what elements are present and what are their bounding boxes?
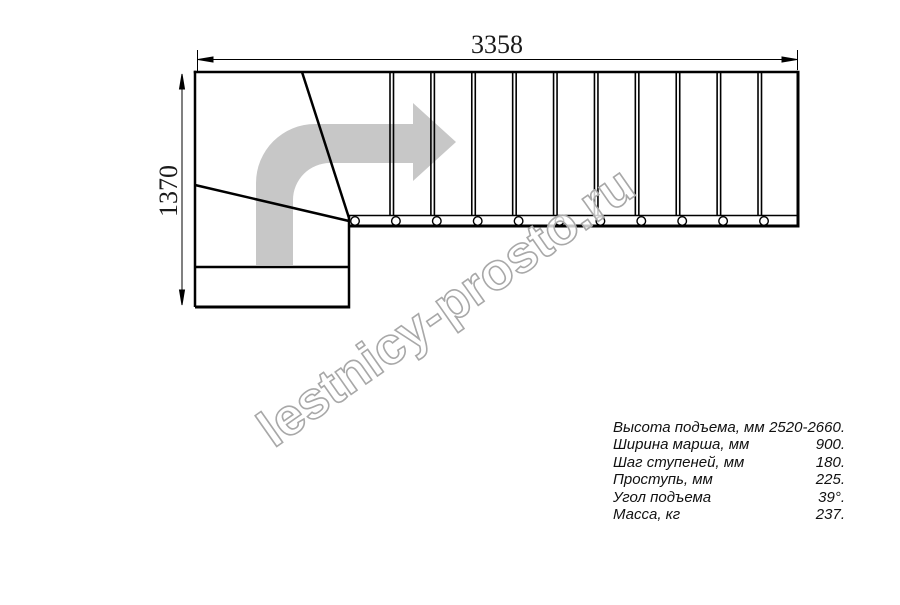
spec-value: 39°. [818,489,845,506]
spec-value: 225. [816,471,845,488]
spec-value: 237. [816,506,845,523]
spec-label: Угол подъема [613,489,711,506]
spec-label: Шаг ступеней, мм [613,454,744,471]
bolt-circle [473,217,482,226]
spec-value: 900. [816,436,845,453]
spec-label: Высота подъема, мм [613,419,765,436]
bolt-circle [433,217,442,226]
dimension-top-label: 3358 [471,30,523,59]
spec-table: Высота подъема, мм 2520-2660. Ширина мар… [613,419,845,523]
stair-plan-drawing: 3358 1370 lestnicy-prosto.ru Высота подъ… [0,0,900,600]
spec-row: Угол подъема 39°. [613,489,845,506]
spec-label: Масса, кг [613,506,680,523]
spec-row: Масса, кг 237. [613,506,845,523]
bolt-circle [719,217,728,226]
spec-row: Шаг ступеней, мм 180. [613,454,845,471]
spec-label: Проступь, мм [613,471,713,488]
bolt-circle [678,217,687,226]
spec-row: Проступь, мм 225. [613,471,845,488]
bolt-circle [392,217,401,226]
bolt-circle [637,217,646,226]
spec-label: Ширина марша, мм [613,436,749,453]
spec-row: Высота подъема, мм 2520-2660. [613,419,845,436]
spec-value: 2520-2660. [769,419,845,436]
spec-row: Ширина марша, мм 900. [613,436,845,453]
direction-arrow-icon [256,103,456,265]
spec-value: 180. [816,454,845,471]
bolt-circle [351,217,360,226]
bolt-circle [760,217,769,226]
dimension-left-label: 1370 [154,165,183,217]
